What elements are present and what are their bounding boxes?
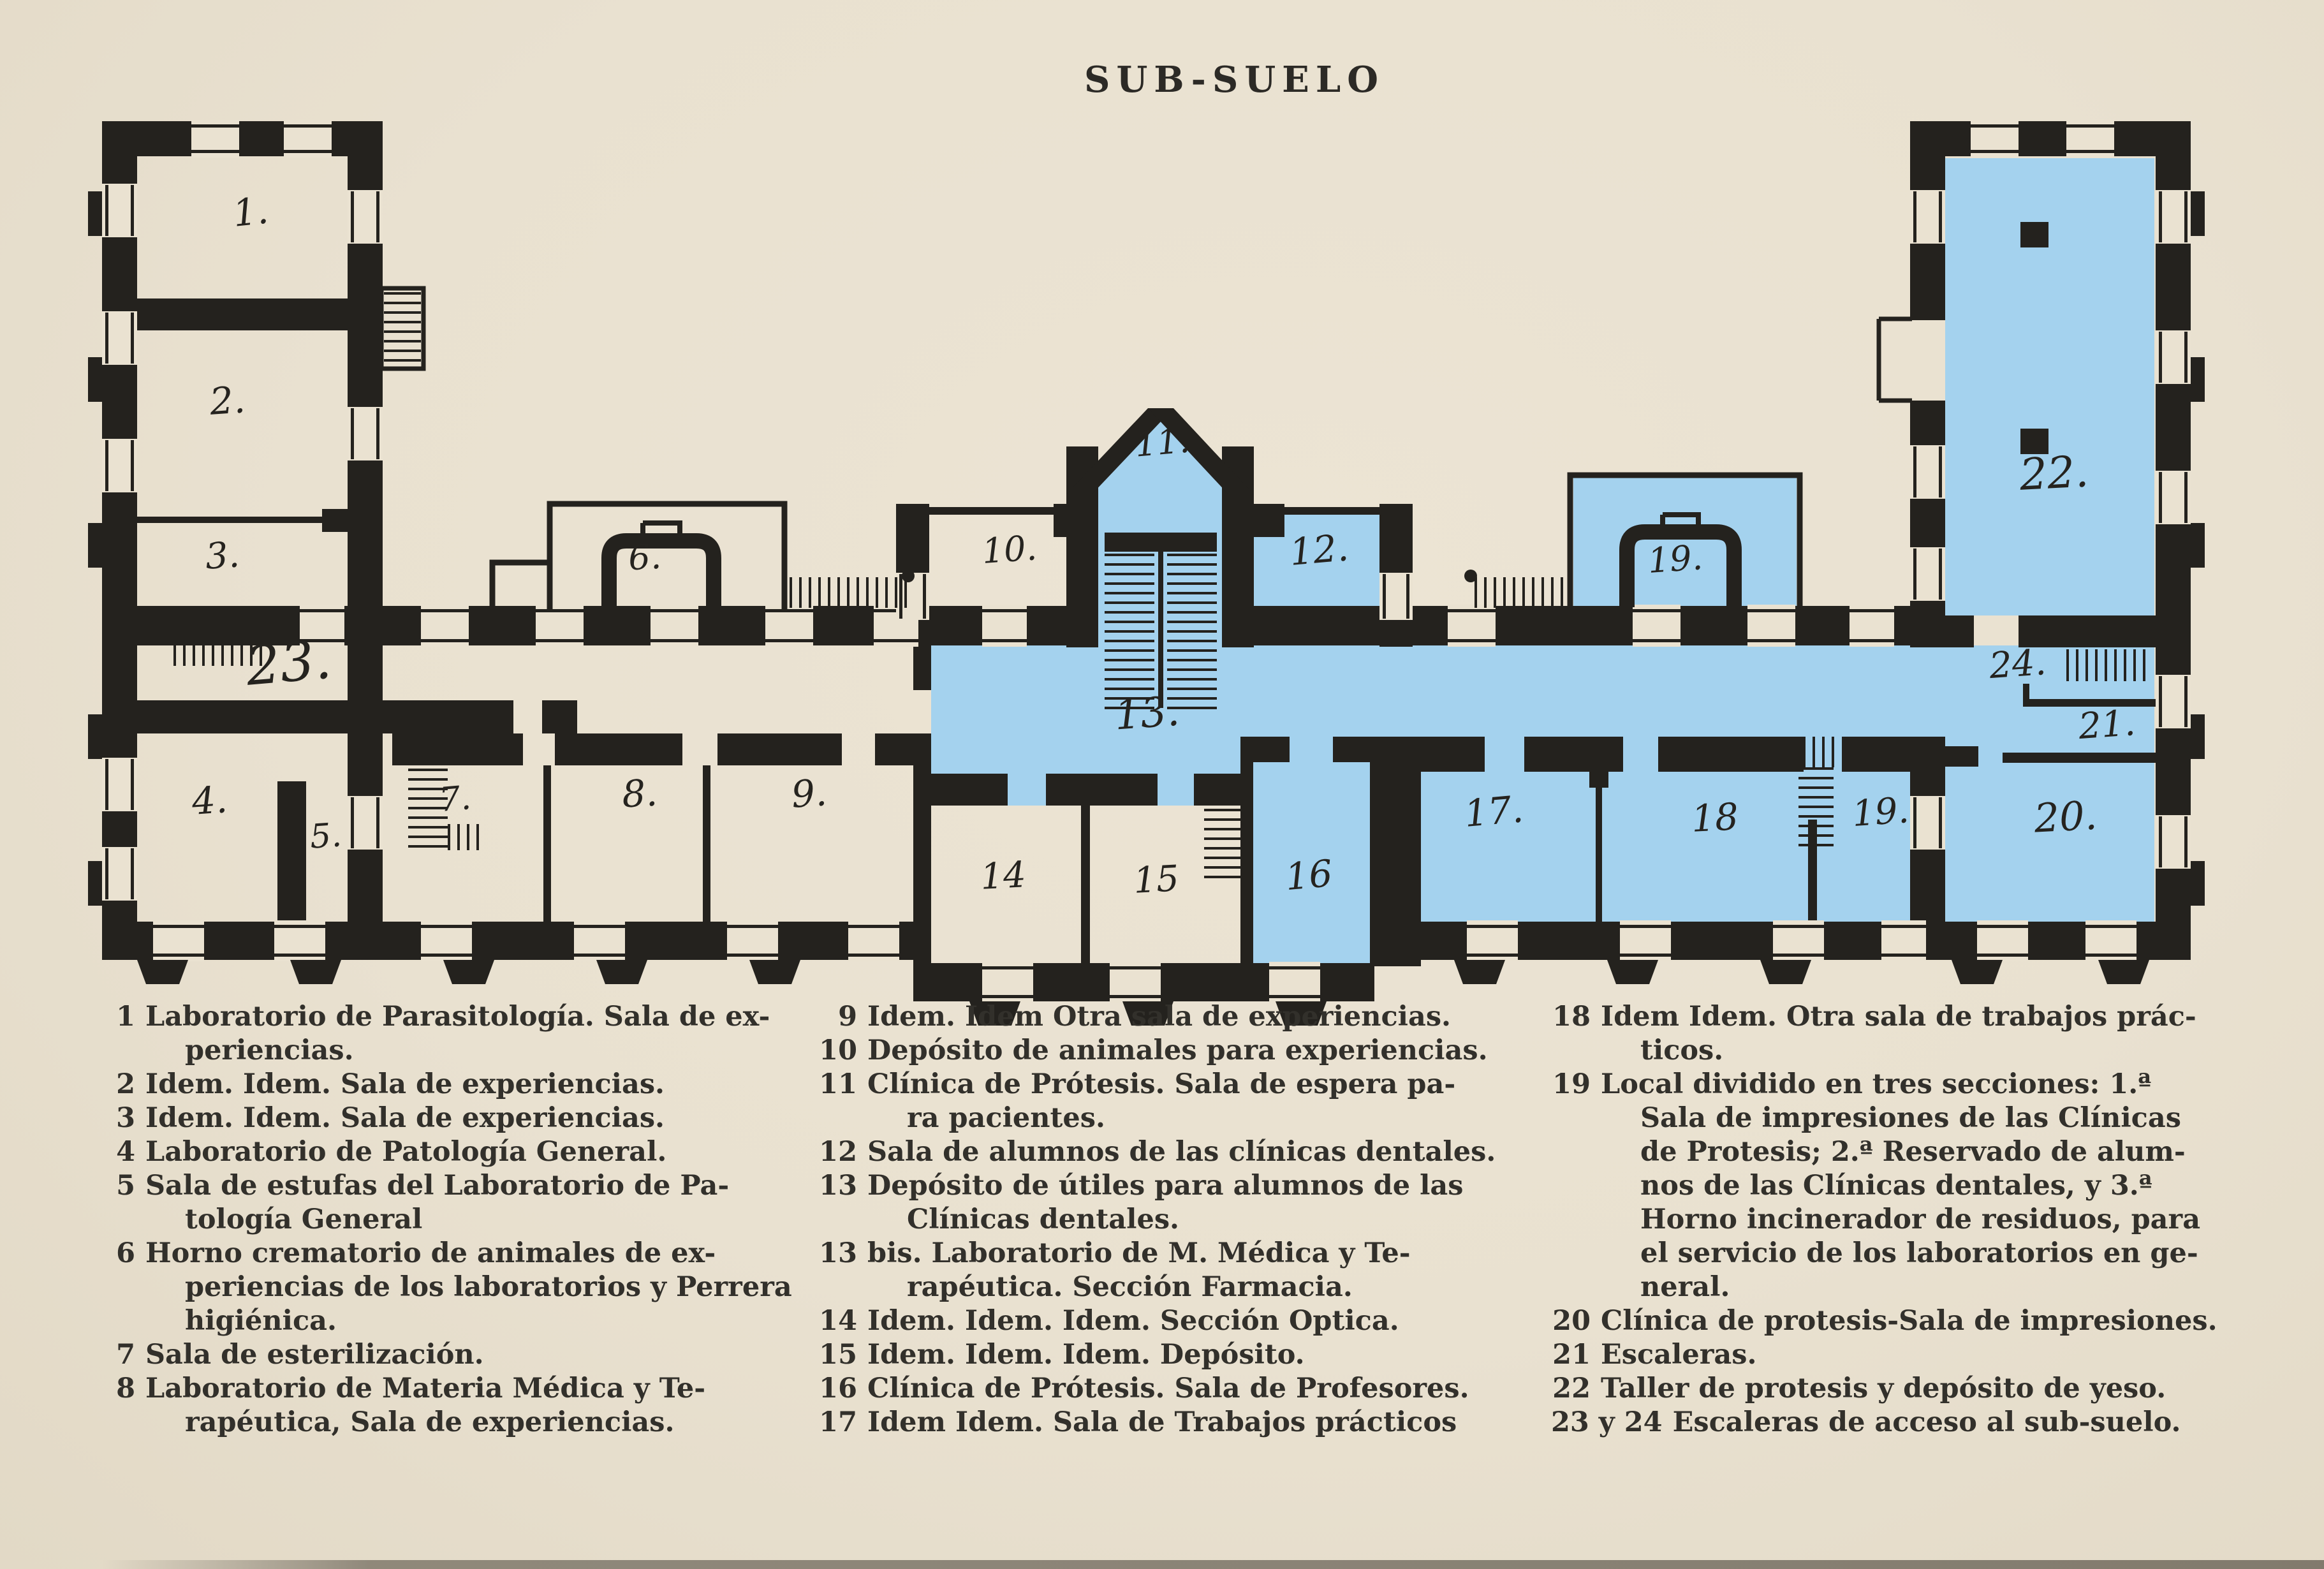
stairs-icon	[193, 611, 195, 666]
window-sill	[2159, 472, 2162, 523]
window-sill	[1939, 797, 1942, 848]
wall-segment	[1589, 772, 1608, 788]
window-sill	[274, 925, 325, 928]
wall-segment	[277, 781, 306, 922]
legend-item-first-line: 15Idem. Idem. Idem. Depósito.	[818, 1338, 1551, 1372]
legend-item-first-line: 21Escaleras.	[1551, 1338, 2300, 1372]
wall-segment	[1524, 737, 1623, 772]
legend-item-number: 20	[1551, 1304, 1591, 1338]
highlighted-room-fill	[1945, 645, 2154, 925]
stairs-icon	[240, 611, 243, 666]
wall-segment	[1421, 737, 1485, 772]
window-sill	[727, 925, 778, 928]
window-sill	[300, 609, 344, 612]
legend-item-first-line: 19Local dividido en tres secciones: 1.ª	[1551, 1068, 2300, 1101]
stairs-icon	[1167, 668, 1217, 671]
legend-item: 1Laboratorio de Parasitología. Sala de e…	[96, 1000, 813, 1068]
stairs-icon	[1105, 630, 1154, 633]
stairs-icon	[408, 836, 448, 838]
legend-item: 19Local dividido en tres secciones: 1.ªS…	[1551, 1068, 2300, 1304]
window-sill	[284, 124, 332, 128]
stairs-icon	[212, 611, 214, 666]
legend-column-3: 18Idem Idem. Otra sala de trabajos prác-…	[1551, 1000, 2300, 1440]
stairs-icon	[1798, 777, 1834, 779]
stairs-icon	[1798, 796, 1834, 799]
legend-item-number: 4	[96, 1135, 135, 1169]
stairs-icon	[1832, 737, 1834, 767]
room-label-21: 21.	[2077, 702, 2136, 748]
window-sill	[421, 925, 472, 928]
window-sill	[2184, 472, 2188, 523]
legend-item-first-line: 16Clínica de Prótesis. Sala de Profesore…	[818, 1372, 1551, 1406]
window-sill	[421, 609, 469, 612]
stairs-icon	[2095, 649, 2098, 681]
stairs-icon	[1167, 678, 1217, 681]
stairs-icon	[448, 824, 450, 850]
wall-segment	[703, 765, 710, 922]
legend-item-text: Clínica de protesis-Sala de impresiones.	[1601, 1305, 2217, 1337]
window-sill	[1977, 954, 2028, 957]
window-sill	[2184, 676, 2188, 727]
legend-item-first-line: 18Idem Idem. Otra sala de trabajos prác-	[1551, 1000, 2300, 1034]
room-label-2: 2.	[208, 378, 247, 424]
wall-segment	[392, 733, 523, 765]
legend-item: 13bis. Laboratorio de M. Médica y Te-rap…	[818, 1237, 1551, 1304]
legend-item-first-line: 8Laboratorio de Materia Médica y Te-	[96, 1372, 813, 1406]
window-sill	[351, 408, 354, 459]
legend-item-number: 2	[96, 1068, 135, 1101]
window-sill	[1110, 966, 1161, 969]
stairs-icon	[1813, 737, 1815, 767]
legend-item-first-line: 20Clínica de protesis-Sala de impresione…	[1551, 1304, 2300, 1338]
legend-item-first-line: 13bis. Laboratorio de M. Médica y Te-	[818, 1237, 1551, 1271]
legend-item-number: 12	[818, 1135, 857, 1169]
window-sill	[982, 966, 1033, 969]
window-sill	[2066, 124, 2114, 128]
wall-segment	[1081, 806, 1090, 963]
stairs-icon	[828, 577, 830, 608]
stairs-icon	[1167, 582, 1217, 585]
window-sill	[1850, 639, 1894, 642]
window-sill	[574, 954, 625, 957]
legend-item-text: nos de las Clínicas dentales, y 3.ª	[1551, 1169, 2300, 1203]
wall-segment	[102, 121, 383, 156]
wall-segment	[1910, 922, 2191, 960]
thin-wall	[550, 504, 784, 609]
legend-item-number: 15	[818, 1338, 857, 1372]
window-sill	[153, 954, 204, 957]
wall-segment	[1596, 788, 1602, 925]
legend-item-number: 5	[96, 1169, 135, 1203]
window-sill	[1971, 150, 2019, 153]
legend-item-text: rapéutica. Sección Farmacia.	[818, 1271, 1551, 1304]
stairs-icon	[384, 292, 421, 295]
window-sill	[131, 185, 134, 236]
room-label-4: 4.	[190, 777, 229, 823]
window-sill	[1383, 574, 1386, 619]
stairs-icon	[384, 359, 421, 362]
room-label-20: 20.	[2033, 792, 2098, 841]
stairs-icon	[1561, 577, 1563, 608]
stairs-icon	[1793, 737, 1796, 767]
stairs-icon	[1204, 847, 1240, 850]
wall-segment	[1945, 746, 1978, 767]
wall-segment	[102, 922, 931, 960]
stairs-icon	[885, 577, 888, 608]
window-sill	[982, 995, 1033, 998]
window-sill	[1913, 446, 1916, 497]
window-sill	[2184, 191, 2188, 242]
stairs-icon	[1105, 621, 1154, 623]
room-label-19: 19.	[1851, 790, 1910, 835]
window-sill	[2159, 191, 2162, 242]
window-sill	[1467, 925, 1518, 928]
stairs-icon	[1475, 577, 1477, 608]
stairs-icon	[1167, 611, 1217, 614]
stairs-icon	[1494, 577, 1496, 608]
room-label-22: 22.	[2018, 446, 2090, 501]
stairs-icon	[1541, 577, 1544, 608]
stairs-icon	[1204, 876, 1240, 878]
stairs-icon	[1484, 577, 1487, 608]
legend-item-text: bis. Laboratorio de M. Médica y Te-	[867, 1237, 1411, 1269]
window-sill	[421, 954, 472, 957]
legend-item-text: Depósito de útiles para alumnos de las	[867, 1170, 1463, 1202]
pilaster	[2191, 523, 2205, 568]
window-sill	[376, 408, 379, 459]
legend-item-text: Taller de protesis y depósito de yeso.	[1601, 1373, 2166, 1404]
wall-segment	[383, 606, 1068, 645]
pilaster	[88, 714, 102, 759]
wall-segment	[896, 504, 929, 537]
stairs-icon	[1167, 640, 1217, 642]
legend-item-number: 7	[96, 1338, 135, 1372]
window-sill	[982, 639, 1027, 642]
stairs-icon	[1105, 659, 1154, 661]
wall-segment	[1240, 737, 1253, 966]
pilaster	[2191, 191, 2205, 236]
window-sill	[923, 574, 926, 619]
thin-wall	[1879, 319, 1912, 401]
wall-segment	[322, 509, 348, 532]
window-sill	[105, 440, 108, 491]
window-sill	[1913, 549, 1916, 600]
pilaster	[2191, 861, 2205, 906]
legend-item-first-line: 7Sala de esterilización.	[96, 1338, 813, 1372]
legend-item-number: 18	[1551, 1000, 1591, 1034]
stairs-icon	[384, 340, 421, 343]
legend-item: 23 y 24Escaleras de acceso al sub-suelo.	[1551, 1406, 2300, 1440]
legend-item-number: 16	[818, 1372, 857, 1406]
stairs-icon	[857, 577, 859, 608]
legend-item-number: 11	[818, 1068, 857, 1101]
legend-item-number: 3	[96, 1101, 135, 1135]
stairs-icon	[1105, 554, 1154, 556]
legend-item: 4Laboratorio de Patología General.	[96, 1135, 813, 1169]
stairs-icon	[1105, 649, 1154, 652]
room-label-15: 15	[1133, 858, 1180, 902]
wall-segment	[1658, 737, 1804, 772]
window-sill	[536, 609, 584, 612]
window-sill	[421, 639, 469, 642]
window-sill	[1467, 954, 1518, 957]
buttress	[1607, 960, 1658, 984]
legend-column-2: 9Idem. Idem Otra sala de experiencias.10…	[818, 1000, 1551, 1440]
wall-segment	[137, 517, 328, 523]
legend-item-text: Local dividido en tres secciones: 1.ª	[1601, 1068, 2151, 1100]
stairs-icon	[1105, 582, 1154, 585]
legend-item: 7Sala de esterilización.	[96, 1338, 813, 1372]
stairs-icon	[1105, 601, 1154, 604]
legend-item-number: 23 y 24	[1551, 1406, 1663, 1440]
window-sill	[274, 954, 325, 957]
window-sill	[1620, 954, 1671, 957]
stairs-icon	[231, 611, 233, 666]
window-sill	[1881, 925, 1926, 928]
stairs-icon	[818, 577, 821, 608]
legend-item-first-line: 2Idem. Idem. Sala de experiencias.	[96, 1068, 813, 1101]
window-sill	[848, 925, 899, 928]
legend-item: 22Taller de protesis y depósito de yeso.	[1551, 1372, 2300, 1406]
legend-item-text: Escaleras.	[1601, 1339, 1756, 1371]
legend-item-text: Laboratorio de Patología General.	[145, 1136, 666, 1168]
wall-segment	[542, 700, 577, 733]
stairs-icon	[1798, 834, 1834, 837]
pilaster	[2191, 714, 2205, 759]
wall-segment	[1370, 737, 1421, 966]
room-label-24: 24.	[1987, 642, 2047, 687]
room-label-3: 3.	[204, 534, 241, 578]
legend-item-text: Idem. Idem. Idem. Sección Optica.	[867, 1305, 1399, 1337]
stairs-icon	[384, 330, 421, 333]
window-sill	[1406, 574, 1409, 619]
buttress	[596, 960, 647, 984]
room-label-6: 6.	[628, 536, 663, 578]
stairs-icon	[1167, 554, 1217, 556]
legend-item-text: Idem. Idem. Idem. Depósito.	[867, 1339, 1305, 1371]
wall-segment	[1910, 121, 2191, 156]
wall-segment	[102, 121, 137, 960]
legend-item-first-line: 1Laboratorio de Parasitología. Sala de e…	[96, 1000, 813, 1034]
stairs-icon	[1105, 668, 1154, 671]
legend-item-text: rapéutica, Sala de experiencias.	[96, 1406, 813, 1440]
window-sill	[1939, 191, 1942, 242]
legend-item-first-line: 14Idem. Idem. Idem. Sección Optica.	[818, 1304, 1551, 1338]
wall-segment	[1105, 533, 1217, 552]
stairs-icon	[1204, 837, 1240, 840]
room-label-9: 9.	[790, 770, 828, 816]
window-sill	[191, 124, 239, 128]
stairs-icon	[1803, 737, 1806, 767]
window-sill	[1269, 995, 1320, 998]
stairs-icon	[1167, 630, 1217, 633]
legend-item-text: el servicio de los laboratorios en ge-	[1551, 1237, 2300, 1271]
stairs-icon	[476, 824, 479, 850]
stairs-icon	[1167, 659, 1217, 661]
stairs-icon	[1167, 649, 1217, 652]
stairs-icon	[1167, 621, 1217, 623]
legend-item: 14Idem. Idem. Idem. Sección Optica.	[818, 1304, 1551, 1338]
pilaster	[88, 357, 102, 402]
stairs-icon	[866, 577, 869, 608]
stairs-icon	[1522, 577, 1525, 608]
legend-item-text: Sala de esterilización.	[145, 1339, 484, 1371]
legend-item-text: Idem Idem. Otra sala de trabajos prác-	[1601, 1001, 2196, 1033]
stairs-icon	[790, 577, 792, 608]
stairs-icon	[384, 311, 421, 314]
stairs-icon	[1105, 640, 1154, 642]
stairs-icon	[221, 611, 224, 666]
stairs-icon	[2085, 649, 2088, 681]
stairs-icon	[457, 824, 460, 850]
window-sill	[131, 440, 134, 491]
legend-item-text: Idem Idem. Sala de Trabajos prácticos	[867, 1406, 1457, 1438]
stairs-icon	[1105, 563, 1154, 566]
wall-segment	[555, 733, 682, 765]
stairs-icon	[1798, 815, 1834, 818]
buttress	[137, 960, 188, 984]
pilaster	[88, 191, 102, 236]
legend-item-text: Laboratorio de Materia Médica y Te-	[145, 1373, 705, 1404]
window-sill	[105, 848, 108, 899]
legend-item-first-line: 12Sala de alumnos de las clínicas dental…	[818, 1135, 1551, 1169]
stairs-icon	[1503, 577, 1506, 608]
window-sill	[1269, 966, 1320, 969]
legend-item-number: 9	[818, 1000, 857, 1034]
window-sill	[727, 954, 778, 957]
window-sill	[1977, 925, 2028, 928]
window-sill	[651, 609, 698, 612]
wall-segment	[717, 733, 842, 765]
window-sill	[1110, 995, 1161, 998]
window-sill	[899, 574, 902, 619]
window-sill	[651, 639, 698, 642]
highlighted-room-fill	[1945, 158, 2154, 615]
legend-item: 10Depósito de animales para experiencias…	[818, 1034, 1551, 1068]
legend-item: 11Clínica de Prótesis. Sala de espera pa…	[818, 1068, 1551, 1135]
stairs-icon	[1798, 767, 1834, 770]
wall-segment	[1251, 737, 1290, 762]
stairs-icon	[2143, 649, 2145, 681]
legend-item-first-line: 5Sala de estufas del Laboratorio de Pa-	[96, 1169, 813, 1203]
legend-item-text: Sala de alumnos de las clínicas dentales…	[867, 1136, 1496, 1168]
wall-segment	[1046, 774, 1158, 806]
window-sill	[2184, 332, 2188, 383]
buttress	[443, 960, 494, 984]
room-label-13: 13.	[1113, 688, 1181, 740]
window-sill	[1939, 549, 1942, 600]
highlighted-rooms-layer	[931, 158, 2154, 966]
thin-wall	[381, 288, 423, 369]
window-sill	[351, 191, 354, 242]
legend-item-text: Depósito de animales para experiencias.	[867, 1035, 1488, 1066]
room-label-8: 8.	[621, 771, 659, 816]
stairs-icon	[384, 321, 421, 323]
buttress	[2098, 960, 2149, 984]
legend-item-number: 17	[818, 1406, 857, 1440]
wall-segment	[913, 733, 931, 1001]
legend-item-number: 6	[96, 1237, 135, 1271]
stairs-icon	[1822, 737, 1825, 767]
stairs-icon	[799, 577, 802, 608]
wall-segment	[2020, 222, 2048, 247]
stairs-icon	[2105, 649, 2107, 681]
stairs-icon	[1167, 563, 1217, 566]
stairs-icon	[1798, 806, 1834, 808]
stairs-icon	[837, 577, 840, 608]
wall-segment	[931, 774, 1008, 806]
legend-item-text: Idem. Idem. Sala de experiencias.	[145, 1068, 665, 1100]
room-label-12: 12.	[1288, 526, 1350, 574]
legend-item-number: 1	[96, 1000, 135, 1034]
window-sill	[1633, 609, 1680, 612]
wall-segment	[1379, 504, 1413, 537]
room-label-19: 19.	[1647, 537, 1704, 581]
stairs-icon	[1798, 786, 1834, 789]
legend-item-text: neral.	[1551, 1271, 2300, 1304]
room-label-18: 18	[1690, 795, 1739, 841]
window-sill	[284, 150, 332, 153]
stairs-icon	[1204, 818, 1240, 821]
post-ball-icon	[1464, 570, 1477, 582]
legend-item: 9Idem. Idem Otra sala de experiencias.	[818, 1000, 1551, 1034]
wall-segment	[102, 700, 513, 733]
buttress	[1454, 960, 1505, 984]
legend-item-number: 8	[96, 1372, 135, 1406]
window-sill	[1881, 954, 1926, 957]
buttress	[749, 960, 800, 984]
window-sill	[2159, 676, 2162, 727]
legend-item: 6Horno crematorio de animales de ex-peri…	[96, 1237, 813, 1338]
stairs-icon	[1167, 573, 1217, 575]
wall-segment	[1194, 774, 1244, 806]
legend-item-text: Idem. Idem Otra sala de experiencias.	[867, 1001, 1451, 1033]
stairs-icon	[202, 611, 205, 666]
room-label-17: 17.	[1462, 787, 1525, 836]
stairs-icon	[1204, 857, 1240, 859]
wall-segment	[1251, 504, 1284, 537]
stairs-icon	[408, 826, 448, 829]
room-label-7: 7.	[438, 779, 473, 820]
window-sill	[1620, 925, 1671, 928]
scanned-page: SUB-SUELO 1.2.3.23.4.5.6.7.8.9.10.11.12.…	[0, 0, 2324, 1569]
stairs-icon	[2114, 649, 2117, 681]
legend-item-text: Sala de impresiones de las Clínicas	[1551, 1101, 2300, 1135]
legend-item-text: Sala de estufas del Laboratorio de Pa-	[145, 1170, 729, 1202]
legend-item-number: 21	[1551, 1338, 1591, 1372]
stairs-icon	[1167, 601, 1217, 604]
legend-item-text: Clínica de Prótesis. Sala de espera pa-	[867, 1068, 1455, 1100]
legend-item-number: 10	[818, 1034, 857, 1068]
window-sill	[982, 609, 1027, 612]
stairs-icon	[847, 577, 849, 608]
stairs-icon	[408, 769, 448, 771]
legend-item-first-line: 17Idem Idem. Sala de Trabajos prácticos	[818, 1406, 1551, 1440]
stairs-icon	[467, 824, 469, 850]
room-label-14: 14	[980, 854, 1027, 898]
wall-segment	[137, 298, 348, 330]
legend-item-text: periencias de los laboratorios y Perrera	[96, 1271, 813, 1304]
room-label-11: 11.	[1133, 420, 1191, 464]
stairs-icon	[1105, 678, 1154, 681]
thin-wall	[492, 563, 550, 609]
window-sill	[2184, 816, 2188, 867]
legend-item-first-line: 3Idem. Idem. Sala de experiencias.	[96, 1101, 813, 1135]
window-sill	[1939, 446, 1942, 497]
wall-segment	[875, 733, 913, 765]
window-sill	[376, 797, 379, 848]
legend-item-text: Clínica de Prótesis. Sala de Profesores.	[867, 1373, 1469, 1404]
